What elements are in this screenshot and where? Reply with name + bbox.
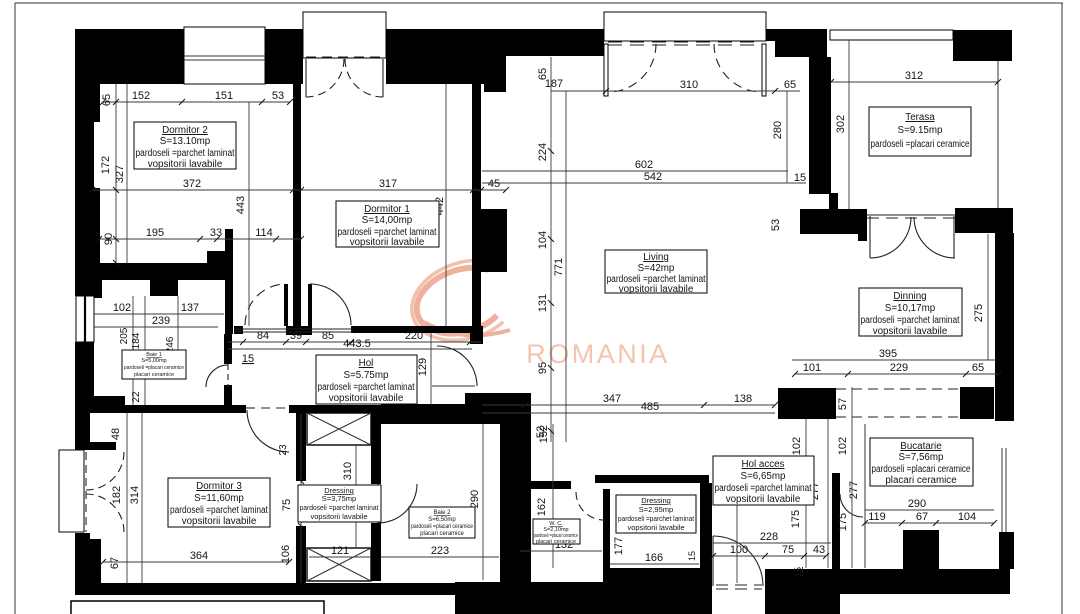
svg-text:290: 290	[469, 490, 481, 508]
svg-text:85: 85	[322, 330, 334, 342]
svg-text:602: 602	[635, 159, 653, 171]
svg-text:pardoseli =parchet laminat: pardoseli =parchet laminat	[715, 483, 812, 494]
svg-text:65: 65	[101, 94, 113, 106]
svg-text:152: 152	[132, 90, 150, 102]
svg-text:119: 119	[868, 511, 886, 523]
svg-text:84: 84	[257, 330, 269, 342]
svg-text:175: 175	[837, 513, 849, 531]
svg-text:pardoseli =parchet laminat: pardoseli =parchet laminat	[170, 505, 268, 516]
svg-text:101: 101	[803, 362, 821, 374]
svg-text:vopsitorii lavabile: vopsitorii lavabile	[627, 523, 684, 532]
svg-text:317: 317	[379, 178, 397, 190]
svg-text:S=14,00mp: S=14,00mp	[362, 215, 413, 226]
svg-text:53: 53	[272, 90, 284, 102]
svg-text:228: 228	[760, 531, 778, 543]
svg-text:placari ceramice: placari ceramice	[885, 475, 957, 486]
svg-text:S=13.10mp: S=13.10mp	[160, 136, 211, 147]
svg-text:pardoseli =parchet laminat: pardoseli =parchet laminat	[136, 148, 235, 159]
svg-text:100: 100	[730, 544, 748, 556]
svg-text:364: 364	[190, 550, 208, 562]
svg-text:S=6,65mp: S=6,65mp	[741, 471, 786, 482]
svg-text:Bucatarie: Bucatarie	[900, 441, 942, 452]
svg-text:vopsitorii lavabile: vopsitorii lavabile	[619, 284, 694, 295]
svg-text:175: 175	[790, 510, 802, 528]
svg-text:Dormitor 2: Dormitor 2	[162, 125, 208, 136]
svg-text:S=5.75mp: S=5.75mp	[344, 370, 389, 381]
svg-text:102: 102	[791, 437, 803, 455]
svg-text:S=11,60mp: S=11,60mp	[194, 493, 244, 504]
svg-text:S=6,50mp: S=6,50mp	[428, 517, 456, 523]
svg-text:277: 277	[848, 481, 860, 499]
svg-text:vopsitorii lavabile: vopsitorii lavabile	[310, 512, 367, 521]
svg-text:15: 15	[687, 551, 697, 561]
svg-text:S=5,00mp: S=5,00mp	[141, 358, 166, 364]
svg-text:vopsitorii lavabile: vopsitorii lavabile	[350, 237, 425, 248]
svg-text:placari ceramice: placari ceramice	[420, 531, 464, 537]
svg-text:Dormitor 1: Dormitor 1	[364, 204, 410, 215]
svg-text:48: 48	[110, 428, 122, 440]
svg-text:114: 114	[255, 227, 273, 239]
svg-text:162: 162	[536, 498, 548, 516]
svg-text:177: 177	[613, 537, 625, 555]
svg-text:Dinning: Dinning	[893, 291, 926, 302]
svg-text:327: 327	[114, 165, 126, 183]
svg-text:131: 131	[537, 294, 549, 312]
svg-text:S=3,75mp: S=3,75mp	[322, 494, 356, 503]
svg-text:15: 15	[793, 567, 803, 577]
svg-text:239: 239	[152, 315, 170, 327]
svg-text:290: 290	[908, 498, 926, 510]
svg-text:102: 102	[837, 437, 849, 455]
svg-text:22: 22	[131, 391, 142, 403]
svg-text:Hol acces: Hol acces	[741, 459, 784, 470]
svg-text:104: 104	[958, 511, 976, 523]
svg-text:75: 75	[782, 544, 794, 556]
svg-text:45: 45	[488, 178, 500, 190]
svg-text:347: 347	[603, 393, 621, 405]
svg-text:372: 372	[183, 178, 201, 190]
svg-text:Dressing: Dressing	[641, 496, 671, 505]
svg-text:pardoseli =placari ceramice: pardoseli =placari ceramice	[411, 524, 474, 530]
svg-text:137: 137	[181, 302, 199, 314]
svg-text:S=7,56mp: S=7,56mp	[899, 452, 944, 463]
svg-text:771: 771	[553, 258, 565, 276]
svg-text:172: 172	[100, 156, 112, 174]
svg-text:S=10,17mp: S=10,17mp	[885, 303, 936, 314]
svg-text:vopsitorii lavabile: vopsitorii lavabile	[873, 326, 948, 337]
svg-text:pardoseli =placari ceramice: pardoseli =placari ceramice	[872, 464, 971, 475]
svg-text:443: 443	[235, 196, 247, 214]
svg-text:15: 15	[242, 353, 254, 365]
svg-text:43: 43	[813, 544, 825, 556]
svg-text:pardoseli =parchet laminat: pardoseli =parchet laminat	[300, 503, 380, 512]
svg-text:95: 95	[537, 362, 549, 374]
svg-text:Living: Living	[643, 252, 669, 263]
svg-text:223: 223	[431, 545, 449, 557]
svg-text:166: 166	[645, 552, 663, 564]
svg-text:485: 485	[641, 401, 659, 413]
svg-text:138: 138	[734, 393, 752, 405]
svg-text:187: 187	[545, 78, 563, 90]
svg-text:102: 102	[113, 302, 131, 314]
svg-text:310: 310	[342, 462, 354, 480]
svg-text:33: 33	[210, 227, 222, 239]
svg-text:90: 90	[103, 233, 115, 245]
svg-text:Dormitor 3: Dormitor 3	[196, 481, 242, 492]
svg-text:pardoseli =parchet laminat: pardoseli =parchet laminat	[318, 382, 415, 393]
svg-text:195: 195	[146, 227, 164, 239]
svg-text:275: 275	[973, 304, 985, 322]
svg-text:302: 302	[835, 115, 847, 133]
svg-text:224: 224	[537, 143, 549, 161]
svg-text:65: 65	[972, 362, 984, 374]
svg-text:220: 220	[405, 330, 423, 342]
svg-text:182: 182	[111, 486, 123, 504]
svg-text:312: 312	[905, 70, 923, 82]
svg-text:106: 106	[280, 545, 292, 563]
svg-text:pardoseli =parchet laminat: pardoseli =parchet laminat	[618, 514, 695, 523]
svg-text:57: 57	[837, 398, 849, 410]
svg-text:121: 121	[331, 545, 349, 557]
svg-text:280: 280	[772, 121, 784, 139]
svg-text:67: 67	[916, 511, 928, 523]
svg-text:443.5: 443.5	[343, 338, 371, 350]
svg-text:pardoseli =placari ceramice: pardoseli =placari ceramice	[871, 139, 970, 150]
svg-text:15: 15	[794, 172, 806, 184]
svg-text:Hol: Hol	[359, 358, 374, 369]
svg-text:39: 39	[290, 330, 302, 342]
svg-text:vopsitorii lavabile: vopsitorii lavabile	[148, 159, 223, 170]
svg-text:pardoseli =parchet laminat: pardoseli =parchet laminat	[861, 315, 960, 326]
svg-text:314: 314	[129, 486, 141, 504]
svg-text:151: 151	[215, 90, 233, 102]
svg-text:53: 53	[770, 219, 782, 231]
svg-text:S=42mp: S=42mp	[638, 263, 675, 274]
svg-text:vopsitorii lavabile: vopsitorii lavabile	[726, 494, 801, 505]
svg-text:67: 67	[109, 557, 121, 569]
svg-text:vopsitorii lavabile: vopsitorii lavabile	[329, 393, 404, 404]
svg-text:vopsitorii lavabile: vopsitorii lavabile	[182, 516, 257, 527]
svg-text:542: 542	[644, 171, 662, 183]
svg-text:184: 184	[131, 332, 142, 349]
svg-text:S=9.15mp: S=9.15mp	[898, 125, 943, 136]
svg-text:23: 23	[278, 444, 289, 456]
svg-text:placari ceramice: placari ceramice	[134, 372, 174, 378]
svg-text:placari ceramice: placari ceramice	[536, 539, 576, 545]
svg-text:229: 229	[890, 362, 908, 374]
svg-text:75: 75	[281, 499, 293, 511]
svg-text:104: 104	[537, 231, 549, 249]
svg-text:S=2,95mp: S=2,95mp	[639, 505, 673, 514]
svg-text:65: 65	[784, 79, 796, 91]
svg-text:pardoseli =placari ceramice: pardoseli =placari ceramice	[124, 365, 184, 371]
svg-text:Terasa: Terasa	[905, 112, 935, 123]
svg-text:152: 152	[538, 425, 550, 443]
svg-text:205: 205	[119, 327, 130, 344]
svg-text:395: 395	[879, 348, 897, 360]
svg-text:129: 129	[417, 358, 429, 376]
svg-text:310: 310	[680, 79, 698, 91]
svg-text:Baie 2: Baie 2	[433, 510, 451, 516]
